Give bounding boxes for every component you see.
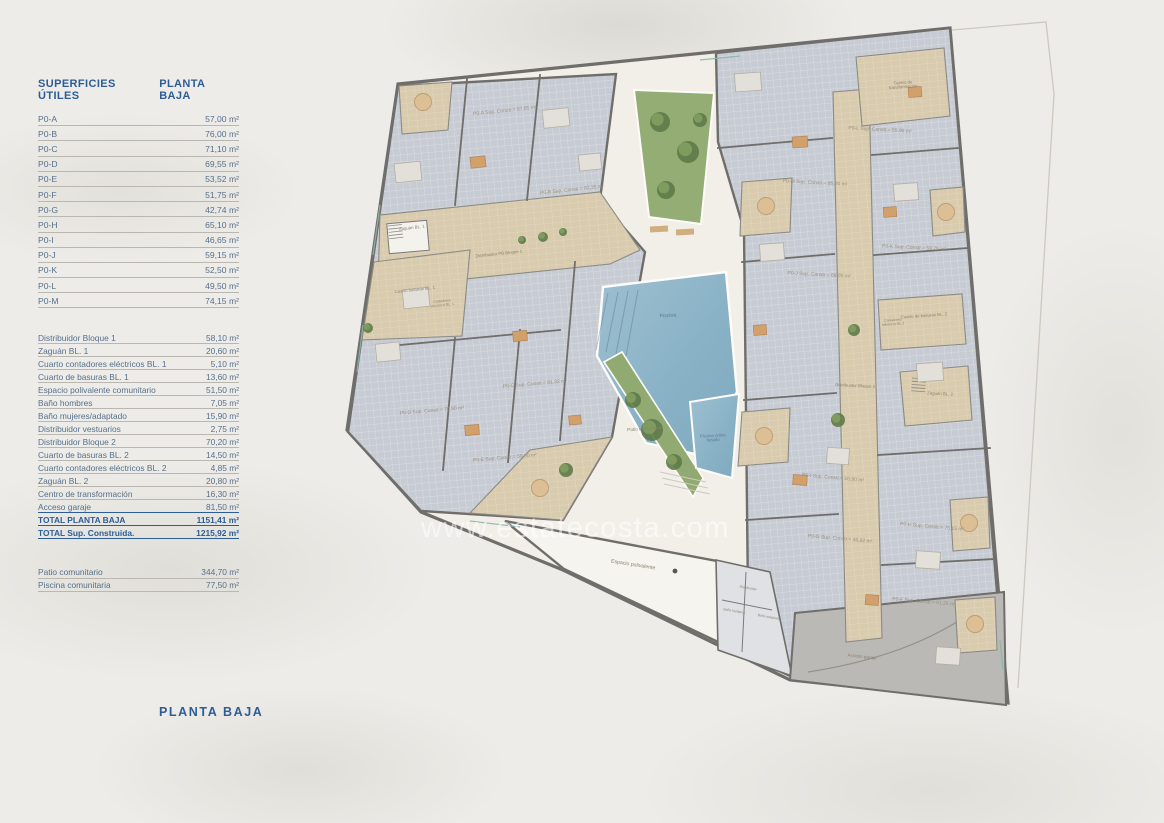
outdoor-areas-list: Patio comunitario344,70 m²Piscina comuni… [38, 565, 239, 592]
row-label: Distribuidor Bloque 2 [38, 437, 116, 447]
round-table-icon [415, 94, 432, 111]
row-label: Baño mujeres/adaptado [38, 411, 127, 421]
common-areas-list: Distribuidor Bloque 158,10 m²Zaguán BL. … [38, 331, 239, 539]
plan-title: PLANTA BAJA [159, 705, 263, 719]
areas-table: SUPERFICIES ÚTILES PLANTA BAJA P0-A57,00… [38, 78, 239, 592]
table-row: P0-B76,00 m² [38, 126, 239, 141]
table-row: Baño mujeres/adaptado15,90 m² [38, 409, 239, 422]
row-label: Cuarto contadores eléctricos BL. 1 [38, 359, 166, 369]
row-label: Zaguán BL. 1 [38, 346, 88, 356]
row-value: 71,10 m² [205, 144, 239, 154]
table-row: P0-C71,10 m² [38, 141, 239, 156]
row-label: Cuarto de basuras BL. 2 [38, 450, 129, 460]
row-value: 65,10 m² [205, 220, 239, 230]
apartment-areas-list: P0-A57,00 m²P0-B76,00 m²P0-C71,10 m²P0-D… [38, 111, 239, 308]
round-table-icon [967, 616, 984, 633]
row-label: P0-G [38, 205, 58, 215]
row-value: 70,20 m² [206, 437, 239, 447]
row-label: Cuarto contadores eléctricos BL. 2 [38, 463, 166, 473]
table-icon [883, 207, 897, 218]
table-title-left: SUPERFICIES ÚTILES [38, 78, 159, 102]
round-table-icon [756, 428, 773, 445]
row-value: 52,50 m² [205, 265, 239, 275]
row-label: P0-F [38, 190, 57, 200]
plan-label-piscina: Piscina [659, 312, 676, 319]
bed-icon [826, 447, 849, 464]
row-value: 15,90 m² [206, 411, 239, 421]
row-value: 7,05 m² [211, 398, 239, 408]
table-row: P0-F51,75 m² [38, 187, 239, 202]
row-value: 81,50 m² [206, 502, 239, 512]
row-value: 59,15 m² [205, 250, 239, 260]
row-value: 49,50 m² [205, 281, 239, 291]
row-label: Baño hombres [38, 398, 92, 408]
row-value: 1215,92 m² [196, 528, 239, 538]
palm-tree-icon [848, 324, 860, 336]
table-row: P0-L49,50 m² [38, 278, 239, 293]
row-label: P0-C [38, 144, 58, 154]
column-dot [673, 569, 678, 574]
plan-label-contadores2: Contadoreseléctricos BL.2 [882, 317, 905, 327]
total-row: TOTAL Sup. Construida.1215,92 m² [38, 526, 239, 539]
table-icon [569, 415, 582, 425]
row-value: 53,52 m² [205, 174, 239, 184]
row-label: Patio comunitario [38, 567, 103, 577]
table-row: Distribuidor Bloque 270,20 m² [38, 435, 239, 448]
row-value: 69,55 m² [205, 159, 239, 169]
bed-icon [893, 183, 918, 202]
row-label: P0-D [38, 159, 58, 169]
bed-icon [375, 342, 401, 362]
row-label: P0-H [38, 220, 58, 230]
row-label: Piscina comunitaria [38, 580, 111, 590]
table-row: P0-M74,15 m² [38, 293, 239, 308]
bed-icon [916, 362, 943, 382]
row-label: P0-M [38, 296, 59, 306]
table-icon [513, 330, 528, 341]
table-icon [465, 424, 480, 435]
row-value: 76,00 m² [205, 129, 239, 139]
row-label: P0-E [38, 174, 57, 184]
palm-tree-icon [559, 228, 567, 236]
round-table-icon [532, 480, 549, 497]
table-row: Cuarto contadores eléctricos BL. 24,85 m… [38, 461, 239, 474]
row-value: 51,75 m² [205, 190, 239, 200]
table-row: P0-H65,10 m² [38, 217, 239, 232]
bed-icon [759, 243, 784, 262]
table-icon [470, 156, 486, 169]
row-value: 58,10 m² [206, 333, 239, 343]
table-row: Zaguán BL. 120,60 m² [38, 344, 239, 357]
palm-tree-icon [677, 141, 699, 163]
table-row: Zaguán BL. 220,80 m² [38, 474, 239, 487]
row-value: 14,50 m² [206, 450, 239, 460]
row-value: 20,80 m² [206, 476, 239, 486]
table-row: Piscina comunitaria77,50 m² [38, 579, 239, 592]
table-row: Espacio polivalente comunitario51,50 m² [38, 383, 239, 396]
row-label: P0-A [38, 114, 57, 124]
row-value: 74,15 m² [205, 296, 239, 306]
total-row: TOTAL PLANTA BAJA1151,41 m² [38, 512, 239, 526]
row-value: 42,74 m² [205, 205, 239, 215]
row-value: 4,85 m² [211, 463, 239, 473]
row-label: Zaguán BL. 2 [38, 476, 88, 486]
bed-icon [915, 551, 940, 570]
row-value: 5,10 m² [211, 359, 239, 369]
table-row: Centro de transformación16,30 m² [38, 487, 239, 500]
row-label: Distribuidor Bloque 1 [38, 333, 116, 343]
table-icon [865, 595, 879, 606]
bed-icon [542, 108, 570, 129]
row-label: P0-K [38, 265, 57, 275]
table-icon [753, 325, 767, 336]
row-value: 16,30 m² [206, 489, 239, 499]
table-icon [792, 136, 808, 148]
row-label: Acceso garaje [38, 502, 91, 512]
row-label: Centro de transformación [38, 489, 133, 499]
table-row: Patio comunitario344,70 m² [38, 565, 239, 578]
round-table-icon [758, 198, 775, 215]
row-value: 20,60 m² [206, 346, 239, 356]
palm-tree-icon [363, 323, 373, 333]
palm-tree-icon [650, 112, 670, 132]
row-label: P0-L [38, 281, 56, 291]
row-label: Cuarto de basuras BL. 1 [38, 372, 129, 382]
bed-icon [578, 153, 602, 171]
table-row: P0-J59,15 m² [38, 248, 239, 263]
table-header: SUPERFICIES ÚTILES PLANTA BAJA [38, 78, 239, 102]
table-title-right: PLANTA BAJA [159, 78, 239, 102]
palm-tree-icon [657, 181, 675, 199]
row-label: P0-I [38, 235, 54, 245]
row-label: TOTAL PLANTA BAJA [38, 515, 125, 525]
row-label: TOTAL Sup. Construida. [38, 528, 134, 538]
row-value: 46,65 m² [205, 235, 239, 245]
table-row: P0-K52,50 m² [38, 263, 239, 278]
table-row: Cuarto de basuras BL. 214,50 m² [38, 448, 239, 461]
palm-tree-icon [693, 113, 707, 127]
row-value: 57,00 m² [205, 114, 239, 124]
bed-icon [394, 161, 422, 183]
bed-icon [734, 72, 761, 92]
watermark: www.estatecosta.com [421, 512, 730, 545]
table-row: Cuarto de basuras BL. 113,60 m² [38, 370, 239, 383]
palm-tree-icon [831, 413, 845, 427]
row-value: 13,60 m² [206, 372, 239, 382]
row-value: 1151,41 m² [197, 515, 239, 525]
table-row: P0-I46,65 m² [38, 233, 239, 248]
palm-tree-icon [625, 392, 641, 408]
table-row: Cuarto contadores eléctricos BL. 15,10 m… [38, 357, 239, 370]
row-label: Espacio polivalente comunitario [38, 385, 156, 395]
palm-tree-icon [559, 463, 573, 477]
palm-tree-icon [666, 454, 682, 470]
table-row: Baño hombres7,05 m² [38, 396, 239, 409]
table-row: P0-D69,55 m² [38, 157, 239, 172]
page: P0-A Sup. Constr.= 67,65 m²P0-B Sup. Con… [0, 0, 1164, 823]
palm-tree-icon [538, 232, 548, 242]
table-row: P0-E53,52 m² [38, 172, 239, 187]
round-table-icon [938, 204, 955, 221]
row-value: 77,50 m² [206, 580, 239, 590]
table-row: P0-A57,00 m² [38, 111, 239, 126]
table-row: P0-G42,74 m² [38, 202, 239, 217]
table-row: Distribuidor Bloque 158,10 m² [38, 331, 239, 344]
palm-tree-icon [518, 236, 526, 244]
table-row: Distribuidor vestuarios2,75 m² [38, 422, 239, 435]
row-label: P0-J [38, 250, 56, 260]
row-value: 2,75 m² [211, 424, 239, 434]
row-value: 344,70 m² [201, 567, 239, 577]
row-value: 51,50 m² [206, 385, 239, 395]
bed-icon [935, 647, 960, 666]
row-label: Distribuidor vestuarios [38, 424, 121, 434]
row-label: P0-B [38, 129, 57, 139]
